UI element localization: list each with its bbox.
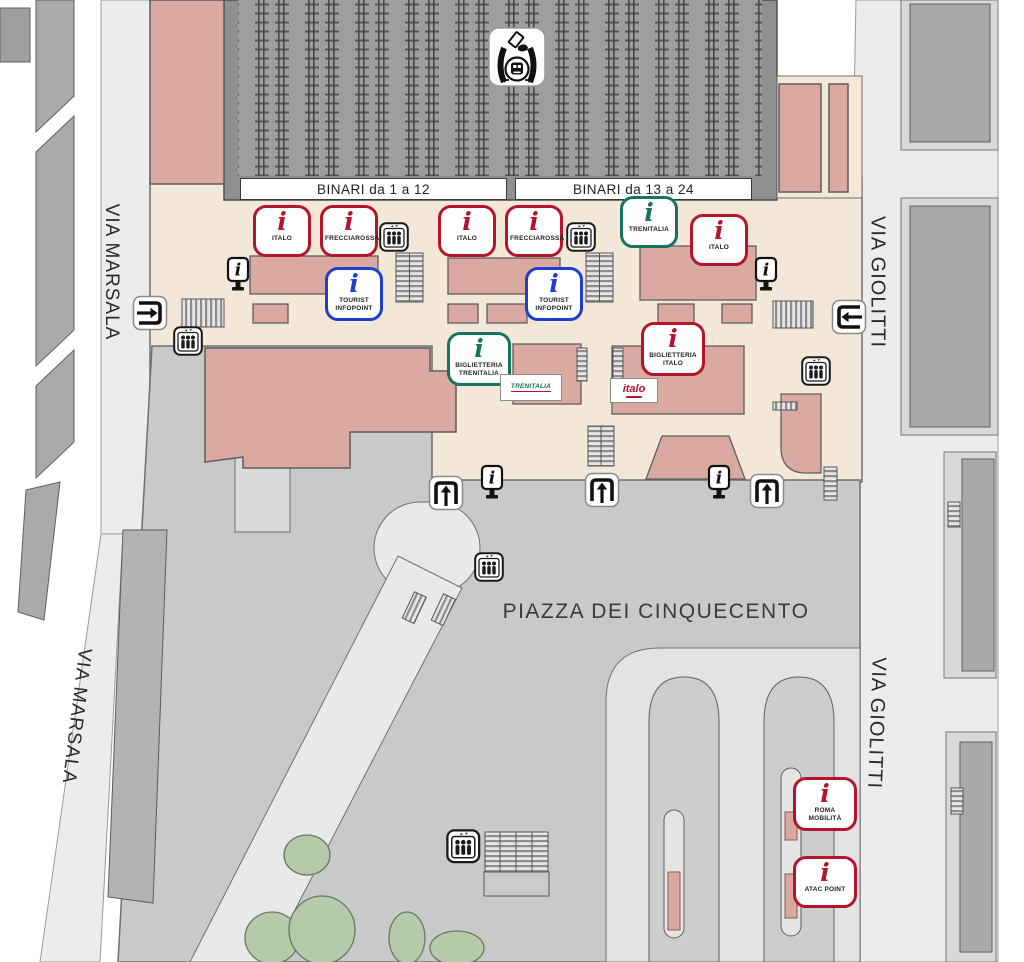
street-label-via-giolitti-bottom: VIA GIOLITTI (862, 657, 890, 790)
infopoint-italo-1: i ITALO (253, 205, 311, 257)
info-icon: i (441, 209, 493, 235)
station-map: i (0, 0, 1024, 962)
infopoint-frecciarossa-2: i FRECCIAROSSA (505, 205, 563, 257)
infopoint-frecciarossa-1: i FRECCIAROSSA (320, 205, 378, 257)
street-label-via-giolitti-top: VIA GIOLITTI (866, 216, 889, 348)
info-icon: i (256, 209, 308, 235)
info-icon: i (623, 200, 675, 226)
biglietteria-italo: i BIGLIETTERIA ITALO (641, 322, 705, 376)
info-icon: i (328, 271, 380, 297)
ticket-gates-icon (489, 28, 545, 86)
piazza-label: PIAZZA DEI CINQUECENTO (503, 600, 810, 624)
info-icon: i (508, 209, 560, 235)
info-icon: i (796, 860, 854, 886)
italo-swoosh (626, 396, 642, 398)
info-icon: i (450, 336, 508, 362)
tourist-infopoint-1: i TOURIST INFOPOINT (325, 267, 383, 321)
infopoint-atac-point: i ATAC POINT (793, 856, 857, 908)
infopoint-trenitalia: i TRENITALIA (620, 196, 678, 248)
info-icon: i (693, 218, 745, 244)
infopoint-italo-3: i ITALO (690, 214, 748, 266)
italo-logo: italo (610, 378, 658, 403)
railway-tracks (238, 0, 762, 176)
tourist-infopoint-2: i TOURIST INFOPOINT (525, 267, 583, 321)
info-icon: i (323, 209, 375, 235)
street-label-via-marsala-top: VIA MARSALA (100, 204, 122, 341)
infopoint-italo-2: i ITALO (438, 205, 496, 257)
info-icon: i (528, 271, 580, 297)
map-base: i (0, 0, 1024, 962)
info-icon: i (796, 781, 854, 807)
trenitalia-logo: TRENITALIA (500, 374, 562, 401)
infopoint-roma-mobilita: i ROMA MOBILITÀ (793, 777, 857, 831)
info-icon: i (644, 326, 702, 352)
binari-label-left: BINARI da 1 a 12 (240, 178, 507, 200)
